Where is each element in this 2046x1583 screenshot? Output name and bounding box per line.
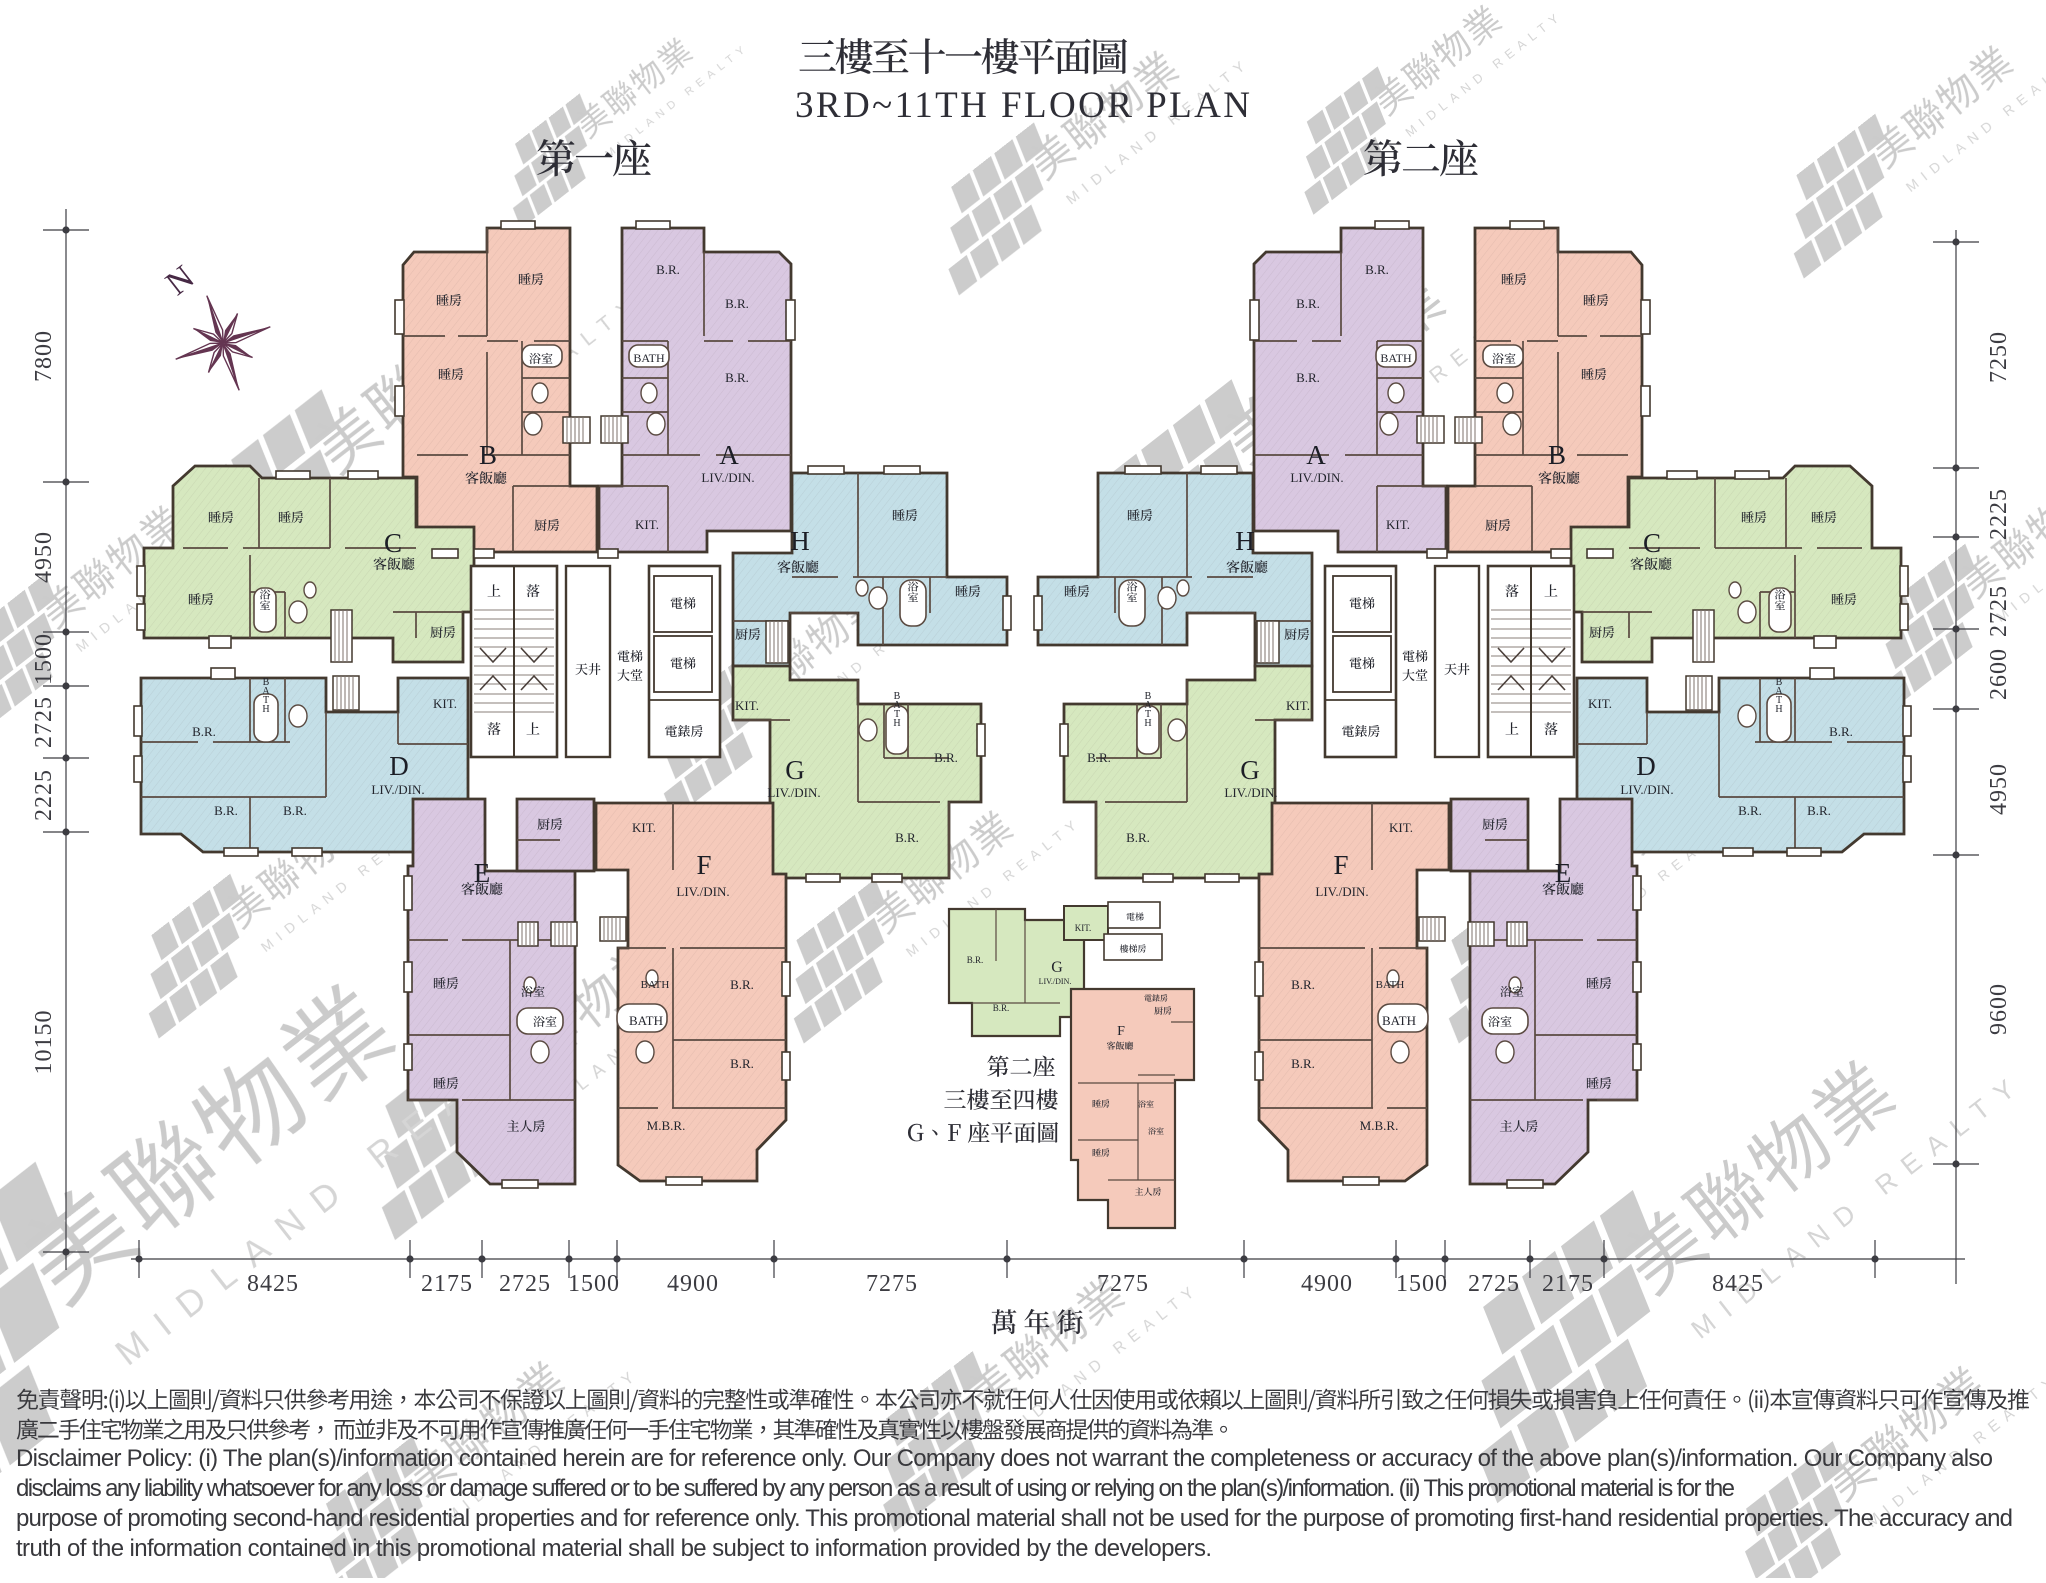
svg-text:客飯廳: 客飯廳: [1226, 557, 1268, 577]
svg-text:落: 落: [1544, 719, 1558, 739]
svg-text:上: 上: [526, 719, 540, 739]
svg-text:LIV./DIN.: LIV./DIN.: [701, 470, 754, 485]
svg-text:三樓至四樓: 三樓至四樓: [944, 1082, 1059, 1115]
svg-text:浴室: 浴室: [533, 1013, 557, 1030]
svg-text:上: 上: [487, 581, 501, 601]
svg-text:D: D: [389, 751, 409, 781]
svg-text:睡房: 睡房: [955, 581, 981, 600]
svg-text:萬年街: 萬年街: [991, 1301, 1090, 1340]
svg-text:1500: 1500: [31, 633, 57, 685]
svg-text:睡房: 睡房: [1092, 1097, 1110, 1110]
svg-text:G: G: [785, 755, 805, 785]
svg-text:客飯廳: 客飯廳: [1106, 1039, 1133, 1052]
svg-text:1500: 1500: [1396, 1271, 1448, 1297]
svg-text:浴室: 浴室: [521, 983, 545, 1000]
svg-text:M.B.R.: M.B.R.: [1360, 1118, 1399, 1133]
svg-text:樓梯房: 樓梯房: [1119, 942, 1146, 955]
svg-text:B.R.: B.R.: [730, 1056, 754, 1071]
svg-text:KIT.: KIT.: [1286, 698, 1310, 713]
svg-text:F: F: [1333, 850, 1348, 880]
svg-text:A: A: [1306, 440, 1326, 470]
svg-text:電錶房: 電錶房: [664, 721, 703, 740]
svg-text:7250: 7250: [1986, 331, 2012, 383]
svg-text:B.R.: B.R.: [1296, 296, 1320, 311]
svg-text:B.R.: B.R.: [993, 1003, 1010, 1013]
svg-text:睡房: 睡房: [1741, 507, 1767, 526]
svg-text:免責聲明:(i)以上圖則/資料只供參考用途，本公司不保證以上: 免責聲明:(i)以上圖則/資料只供參考用途，本公司不保證以上圖則/資料的完整性或…: [16, 1381, 2030, 1415]
svg-text:G: G: [1051, 959, 1063, 976]
svg-text:LIV./DIN.: LIV./DIN.: [1224, 785, 1277, 800]
svg-text:BATH: BATH: [892, 691, 903, 727]
svg-text:大堂: 大堂: [617, 665, 643, 684]
svg-text:睡房: 睡房: [438, 364, 464, 383]
svg-text:大堂: 大堂: [1402, 665, 1428, 684]
svg-text:睡房: 睡房: [278, 507, 304, 526]
svg-text:BATH: BATH: [1143, 691, 1154, 727]
svg-text:客飯廳: 客飯廳: [1630, 554, 1672, 574]
svg-text:B.R.: B.R.: [1829, 724, 1853, 739]
svg-text:BATH: BATH: [261, 677, 272, 713]
svg-text:B: B: [479, 440, 497, 470]
svg-text:睡房: 睡房: [1583, 290, 1609, 309]
svg-text:B.R.: B.R.: [1291, 977, 1315, 992]
svg-text:8425: 8425: [247, 1271, 299, 1297]
svg-text:LIV./DIN.: LIV./DIN.: [1290, 470, 1343, 485]
svg-text:上: 上: [1544, 581, 1558, 601]
svg-text:KIT.: KIT.: [1389, 820, 1413, 835]
svg-text:D: D: [1636, 751, 1656, 781]
svg-text:7800: 7800: [31, 330, 57, 382]
svg-text:LIV./DIN.: LIV./DIN.: [767, 785, 820, 800]
svg-text:電梯: 電梯: [670, 653, 696, 672]
svg-text:9600: 9600: [1986, 983, 2012, 1035]
svg-text:電梯: 電梯: [670, 593, 696, 612]
svg-text:B.R.: B.R.: [725, 296, 749, 311]
svg-text:主人房: 主人房: [1134, 1185, 1161, 1198]
svg-text:H: H: [1235, 526, 1255, 556]
svg-text:客飯廳: 客飯廳: [1542, 879, 1584, 899]
svg-text:厨房: 厨房: [1589, 622, 1615, 641]
svg-text:睡房: 睡房: [436, 290, 462, 309]
svg-text:浴室: 浴室: [1488, 1013, 1512, 1030]
svg-text:睡房: 睡房: [208, 507, 234, 526]
svg-text:電梯: 電梯: [1402, 646, 1428, 665]
svg-text:客飯廳: 客飯廳: [1538, 468, 1580, 488]
svg-text:truth of the information conta: truth of the information contained in th…: [16, 1535, 1212, 1562]
svg-text:M.B.R.: M.B.R.: [647, 1118, 686, 1133]
svg-text:B.R.: B.R.: [192, 724, 216, 739]
svg-text:B.R.: B.R.: [934, 750, 958, 765]
svg-text:B.R.: B.R.: [656, 262, 680, 277]
svg-text:浴室: 浴室: [257, 588, 273, 610]
svg-text:2600: 2600: [1986, 648, 2012, 700]
svg-text:LIV./DIN.: LIV./DIN.: [676, 884, 729, 899]
svg-text:B.R.: B.R.: [1291, 1056, 1315, 1071]
svg-text:天井: 天井: [1444, 659, 1470, 678]
svg-text:purpose of promoting second-ha: purpose of promoting second-hand residen…: [16, 1505, 2013, 1532]
svg-text:10150: 10150: [31, 1010, 57, 1075]
svg-text:2725: 2725: [1986, 585, 2012, 637]
svg-text:浴室: 浴室: [1772, 588, 1788, 610]
svg-text:廣二手住宅物業之用及只供參考， 而並非及不可用作宣傳推廣任何: 廣二手住宅物業之用及只供參考， 而並非及不可用作宣傳推廣任何一手住宅物業，其準確…: [16, 1411, 1235, 1445]
svg-text:BATH: BATH: [629, 1013, 663, 1028]
svg-text:B.R.: B.R.: [1807, 803, 1831, 818]
svg-text:睡房: 睡房: [1831, 589, 1857, 608]
svg-text:B.R.: B.R.: [1087, 750, 1111, 765]
svg-text:2175: 2175: [421, 1271, 473, 1297]
svg-text:2175: 2175: [1542, 1271, 1594, 1297]
svg-text:BATH: BATH: [633, 351, 665, 365]
svg-text:浴室: 浴室: [1138, 1099, 1154, 1110]
svg-text:B.R.: B.R.: [730, 977, 754, 992]
svg-text:三樓至十一樓平面圖: 三樓至十一樓平面圖: [798, 27, 1128, 83]
svg-text:睡房: 睡房: [188, 589, 214, 608]
svg-text:厨房: 厨房: [534, 515, 560, 534]
svg-text:主人房: 主人房: [506, 1116, 545, 1135]
svg-text:BATH: BATH: [1380, 351, 1412, 365]
svg-text:客飯廳: 客飯廳: [373, 554, 415, 574]
svg-text:KIT.: KIT.: [433, 696, 457, 711]
svg-text:2225: 2225: [1986, 488, 2012, 540]
svg-text:B.R.: B.R.: [283, 803, 307, 818]
svg-text:第二座: 第二座: [987, 1049, 1056, 1082]
svg-text:上: 上: [1505, 719, 1519, 739]
svg-text:電梯: 電梯: [1126, 910, 1144, 923]
svg-text:2225: 2225: [31, 769, 57, 821]
svg-text:G: G: [1240, 755, 1260, 785]
svg-text:F: F: [1117, 1024, 1125, 1039]
svg-text:2725: 2725: [31, 696, 57, 748]
svg-text:2725: 2725: [1468, 1271, 1520, 1297]
svg-text:4950: 4950: [31, 531, 57, 583]
svg-text:睡房: 睡房: [1064, 581, 1090, 600]
svg-text:厨房: 厨房: [1482, 814, 1508, 833]
svg-text:厨房: 厨房: [430, 622, 456, 641]
svg-text:第一座: 第一座: [536, 128, 651, 185]
svg-text:H: H: [790, 526, 810, 556]
svg-text:睡房: 睡房: [1501, 269, 1527, 288]
svg-text:A: A: [719, 440, 739, 470]
svg-text:客飯廳: 客飯廳: [461, 879, 503, 899]
svg-text:電梯: 電梯: [1349, 593, 1375, 612]
svg-text:落: 落: [1505, 581, 1519, 601]
svg-text:KIT.: KIT.: [632, 820, 656, 835]
svg-text:KIT.: KIT.: [735, 698, 759, 713]
svg-text:B.R.: B.R.: [967, 955, 984, 965]
svg-text:睡房: 睡房: [1586, 1073, 1612, 1092]
svg-text:KIT.: KIT.: [635, 517, 659, 532]
svg-text:7275: 7275: [866, 1271, 918, 1297]
svg-text:電梯: 電梯: [617, 646, 643, 665]
svg-text:disclaims any liability whatso: disclaims any liability whatsoever for a…: [16, 1475, 1735, 1502]
svg-text:電梯: 電梯: [1349, 653, 1375, 672]
svg-text:4950: 4950: [1986, 763, 2012, 815]
svg-text:BATH: BATH: [1382, 1013, 1416, 1028]
svg-text:BATH: BATH: [641, 979, 670, 991]
svg-text:7275: 7275: [1097, 1271, 1149, 1297]
svg-text:4900: 4900: [667, 1271, 719, 1297]
svg-text:B.R.: B.R.: [895, 830, 919, 845]
svg-text:B.R.: B.R.: [214, 803, 238, 818]
svg-text:浴室: 浴室: [1500, 983, 1524, 1000]
svg-text:睡房: 睡房: [892, 505, 918, 524]
svg-text:B.R.: B.R.: [1126, 830, 1150, 845]
svg-text:厨房: 厨房: [735, 624, 761, 643]
svg-text:厨房: 厨房: [1284, 624, 1310, 643]
svg-text:主人房: 主人房: [1499, 1116, 1538, 1135]
svg-text:KIT.: KIT.: [1386, 517, 1410, 532]
svg-text:睡房: 睡房: [1811, 507, 1837, 526]
svg-text:LIV./DIN.: LIV./DIN.: [1315, 884, 1368, 899]
svg-text:電錶房: 電錶房: [1341, 721, 1380, 740]
svg-text:睡房: 睡房: [1586, 973, 1612, 992]
svg-text:B.R.: B.R.: [1365, 262, 1389, 277]
svg-text:厨房: 厨房: [537, 814, 563, 833]
svg-text:8425: 8425: [1712, 1271, 1764, 1297]
svg-text:落: 落: [487, 719, 501, 739]
svg-text:睡房: 睡房: [1092, 1146, 1110, 1159]
svg-text:厨房: 厨房: [1154, 1004, 1172, 1017]
svg-text:LIV./DIN.: LIV./DIN.: [371, 782, 424, 797]
svg-text:4900: 4900: [1301, 1271, 1353, 1297]
svg-text:1500: 1500: [568, 1271, 620, 1297]
svg-text:睡房: 睡房: [433, 973, 459, 992]
svg-text:浴室: 浴室: [1148, 1126, 1164, 1137]
svg-text:落: 落: [526, 581, 540, 601]
svg-text:Disclaimer Policy: (i) The pla: Disclaimer Policy: (i) The plan(s)/infor…: [16, 1445, 1993, 1472]
svg-text:B: B: [1548, 440, 1566, 470]
svg-text:B.R.: B.R.: [725, 370, 749, 385]
svg-text:B.R.: B.R.: [1738, 803, 1762, 818]
svg-text:客飯廳: 客飯廳: [777, 557, 819, 577]
svg-text:厨房: 厨房: [1485, 515, 1511, 534]
svg-text:BATH: BATH: [1376, 979, 1405, 991]
svg-text:浴室: 浴室: [905, 580, 921, 602]
svg-text:睡房: 睡房: [433, 1073, 459, 1092]
svg-text:LIV./DIN.: LIV./DIN.: [1039, 977, 1072, 986]
svg-text:第二座: 第二座: [1363, 128, 1478, 185]
svg-text:KIT.: KIT.: [1588, 696, 1612, 711]
svg-text:F: F: [696, 850, 711, 880]
svg-text:G、F 座平面圖: G、F 座平面圖: [907, 1115, 1060, 1148]
svg-text:BATH: BATH: [1774, 677, 1785, 713]
svg-text:2725: 2725: [499, 1271, 551, 1297]
svg-text:浴室: 浴室: [1492, 350, 1516, 367]
svg-text:浴室: 浴室: [1124, 580, 1140, 602]
svg-text:天井: 天井: [575, 659, 601, 678]
svg-text:電錶房: 電錶房: [1144, 993, 1168, 1004]
svg-text:B.R.: B.R.: [1296, 370, 1320, 385]
svg-text:睡房: 睡房: [518, 269, 544, 288]
svg-text:浴室: 浴室: [529, 350, 553, 367]
svg-text:客飯廳: 客飯廳: [465, 468, 507, 488]
svg-text:KIT.: KIT.: [1075, 923, 1092, 933]
svg-text:睡房: 睡房: [1127, 505, 1153, 524]
svg-text:睡房: 睡房: [1581, 364, 1607, 383]
svg-text:LIV./DIN.: LIV./DIN.: [1620, 782, 1673, 797]
